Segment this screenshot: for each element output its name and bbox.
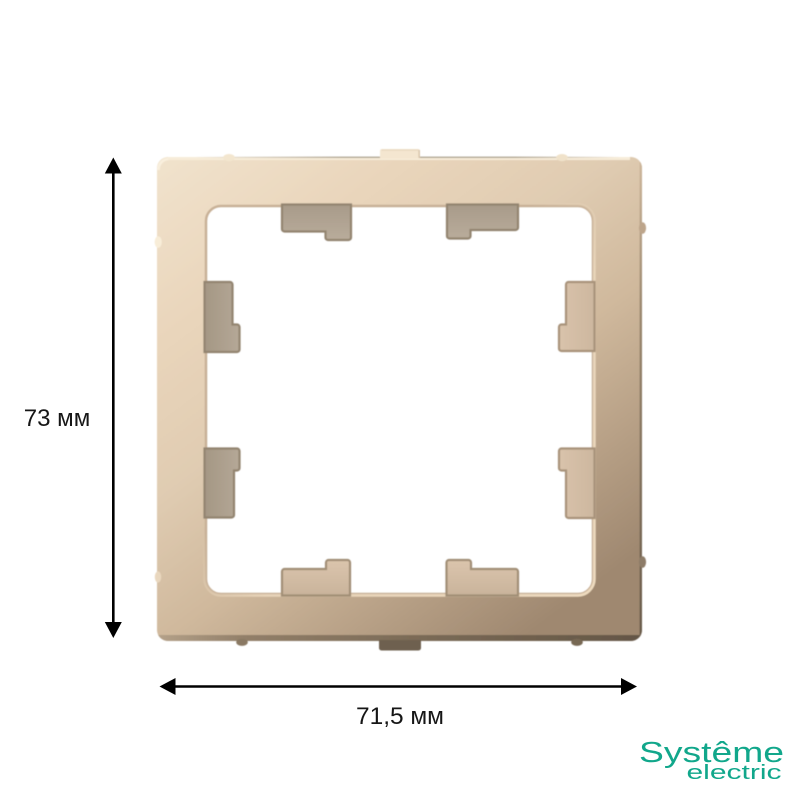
svg-text:electric: electric — [687, 762, 782, 784]
svg-text:71,5 мм: 71,5 мм — [356, 703, 444, 730]
svg-text:73 мм: 73 мм — [24, 405, 91, 432]
